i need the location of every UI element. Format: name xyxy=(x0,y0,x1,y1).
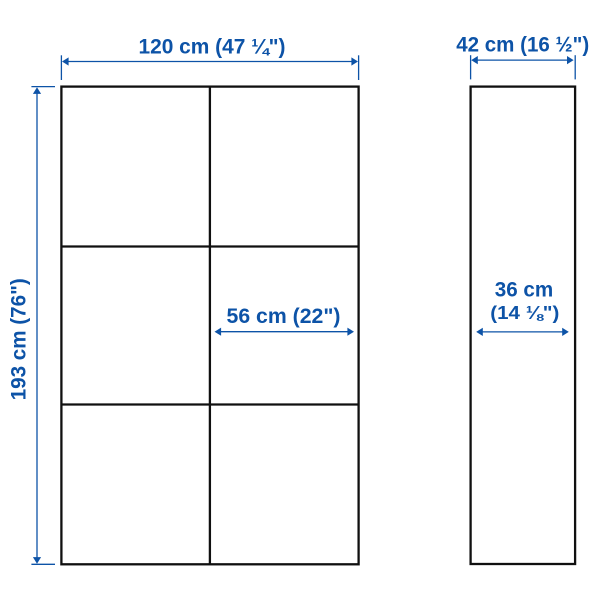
svg-text:193 cm (76"): 193 cm (76") xyxy=(7,278,31,400)
svg-text:120 cm (47 ¼"): 120 cm (47 ¼") xyxy=(139,34,286,58)
svg-text:42 cm (16 ½"): 42 cm (16 ½") xyxy=(456,33,589,57)
svg-text:56 cm (22"): 56 cm (22") xyxy=(227,304,341,328)
svg-text:36 cm: 36 cm xyxy=(495,278,554,302)
svg-text:(14 ⅛"): (14 ⅛") xyxy=(490,302,559,323)
